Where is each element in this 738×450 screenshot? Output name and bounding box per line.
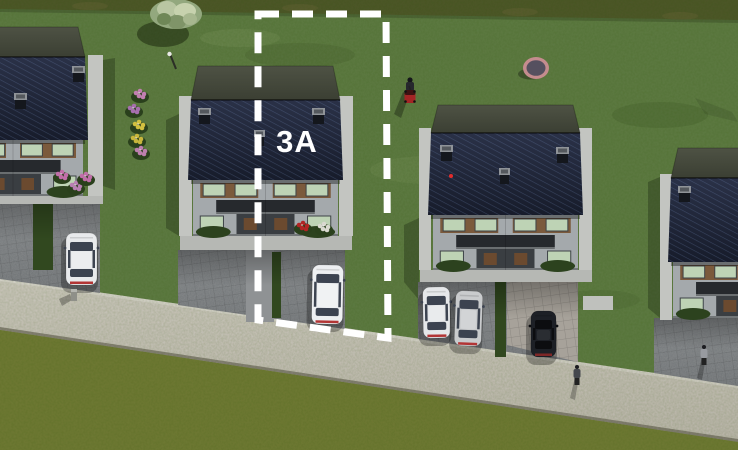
flower (83, 177, 88, 182)
taillights (427, 334, 446, 337)
car-roof (72, 252, 91, 268)
scene-svg: 3A (0, 0, 738, 450)
pedestrian-legs (702, 358, 707, 365)
road-post-top (71, 289, 77, 292)
bush (436, 260, 471, 272)
canopy (696, 282, 738, 294)
window (443, 219, 465, 231)
flower (140, 126, 145, 131)
silver-car-house3 (449, 290, 486, 354)
flower (138, 151, 143, 156)
flower-highlight (135, 137, 137, 139)
flower-highlight (137, 123, 139, 125)
mower-wheel (413, 90, 416, 93)
flower (300, 226, 305, 231)
bush (540, 260, 575, 272)
tree-foliage (183, 13, 197, 25)
flower (137, 94, 142, 99)
pedestrian-body (701, 349, 708, 358)
window (475, 219, 497, 231)
rear-window (458, 330, 477, 339)
concrete-apron (420, 270, 592, 282)
concrete-apron (0, 196, 103, 204)
facade-divider (265, 180, 266, 236)
window (306, 184, 328, 196)
chimney-cap-inner (16, 95, 25, 99)
plot-label: 3A (276, 124, 318, 159)
flower (77, 187, 82, 192)
side-window (314, 282, 317, 307)
pedestrian-head (702, 345, 706, 349)
chimney-cap-inner (200, 110, 209, 114)
rear-window (316, 308, 339, 316)
window (274, 184, 296, 196)
facade-divider (13, 140, 14, 196)
window (21, 144, 42, 156)
roof-ridge-section (431, 105, 580, 133)
door (723, 300, 736, 312)
roof-ridge-section (671, 148, 738, 178)
windshield (427, 296, 446, 305)
mirror (97, 247, 100, 250)
side-window (68, 250, 71, 268)
eave-shadow (431, 215, 580, 219)
flower-highlight (139, 149, 141, 151)
flower (141, 95, 146, 100)
flower-highlight (322, 225, 324, 227)
side-window (425, 304, 428, 321)
canopy (0, 160, 61, 172)
rear-window (427, 322, 446, 330)
window (52, 144, 73, 156)
flower-highlight (301, 224, 303, 226)
flower (59, 175, 64, 180)
site-plan-render: 3A (0, 0, 738, 450)
rear-window (535, 341, 552, 349)
taillights (70, 282, 93, 285)
roof-ridge-line (431, 132, 580, 134)
house-shadow (648, 177, 660, 318)
chimney-cap-inner (74, 68, 83, 72)
window (683, 266, 705, 278)
white-car-house3 (418, 287, 453, 347)
door (484, 253, 497, 265)
canopy-shadow (0, 172, 61, 174)
canopy-shadow (696, 294, 738, 296)
black-car-house3 (526, 311, 558, 365)
chimney-cap-inner (558, 149, 567, 153)
tree-foliage (157, 13, 171, 25)
mower-wheel (413, 100, 416, 103)
side-walkway (583, 296, 613, 310)
rear-window (70, 269, 93, 277)
house-shadow (103, 58, 115, 190)
window (203, 184, 225, 196)
pedestrian-legs (575, 378, 580, 385)
windshield (70, 242, 93, 251)
lamp-head (167, 52, 171, 56)
flower-highlight (60, 173, 62, 175)
chimney-cap-inner (442, 147, 451, 151)
tree-foliage (168, 15, 186, 29)
window (715, 266, 737, 278)
flower (73, 186, 78, 191)
flower (135, 110, 140, 115)
roof-ridge-section (0, 27, 85, 57)
pedestrian-body (574, 369, 581, 378)
entry (0, 174, 41, 194)
flower-highlight (74, 184, 76, 186)
flower (138, 140, 143, 145)
flower (304, 227, 309, 232)
side-window (93, 250, 96, 268)
white-car-plot-3a (306, 265, 346, 333)
side-window (533, 328, 536, 340)
hood-line (70, 237, 93, 239)
mower-wheel (404, 90, 407, 93)
side-window (445, 304, 448, 321)
roof-red-marker (449, 174, 453, 178)
roof-ridge-line (0, 56, 85, 58)
flower (131, 109, 136, 114)
door (514, 253, 527, 265)
person-head (407, 77, 412, 82)
window (235, 184, 257, 196)
flower (142, 152, 147, 157)
roof-ridge-section (191, 66, 340, 100)
chimney-cap-inner (314, 110, 323, 114)
flower-highlight (132, 107, 134, 109)
eave-shadow (191, 180, 340, 184)
mirror (64, 247, 67, 250)
side-window (552, 328, 555, 340)
side-window (338, 282, 341, 307)
window (0, 144, 5, 156)
flower (136, 125, 141, 130)
door (21, 178, 34, 190)
flower (87, 178, 92, 183)
door (274, 218, 287, 230)
window (514, 219, 536, 231)
hood-line (535, 315, 552, 317)
taillights (535, 354, 552, 357)
windshield (316, 274, 339, 283)
pedestrian-head (575, 365, 579, 369)
roof-ridge-line (191, 99, 340, 101)
car-roof (537, 330, 550, 340)
car-roof (429, 306, 444, 321)
flower (321, 227, 326, 232)
car-roof (461, 310, 477, 330)
house-shadow (166, 114, 179, 236)
facade-divider (505, 215, 506, 270)
mirror (556, 325, 559, 328)
eave-shadow (0, 140, 85, 144)
render-root (0, 0, 738, 450)
mower-wheel (404, 100, 407, 103)
flower-highlight (84, 175, 86, 177)
concrete-apron (180, 236, 352, 250)
window (546, 219, 568, 231)
eave-shadow (671, 262, 738, 266)
car-roof (318, 284, 337, 307)
flower (325, 228, 330, 233)
flower-highlight (138, 92, 140, 94)
white-car-house1 (61, 233, 99, 293)
taillights (316, 320, 339, 323)
mirror (529, 325, 532, 328)
door (0, 178, 5, 190)
house-4-area (648, 148, 738, 386)
windshield (535, 320, 552, 329)
chimney-cap-inner (680, 188, 689, 192)
bush (676, 308, 711, 320)
flower (63, 176, 68, 181)
roof-ridge-line (671, 177, 738, 179)
flower (134, 139, 139, 144)
chimney-cap-inner (501, 170, 508, 174)
trampoline-mat (527, 60, 546, 76)
bush (196, 226, 231, 238)
windshield (459, 300, 478, 310)
